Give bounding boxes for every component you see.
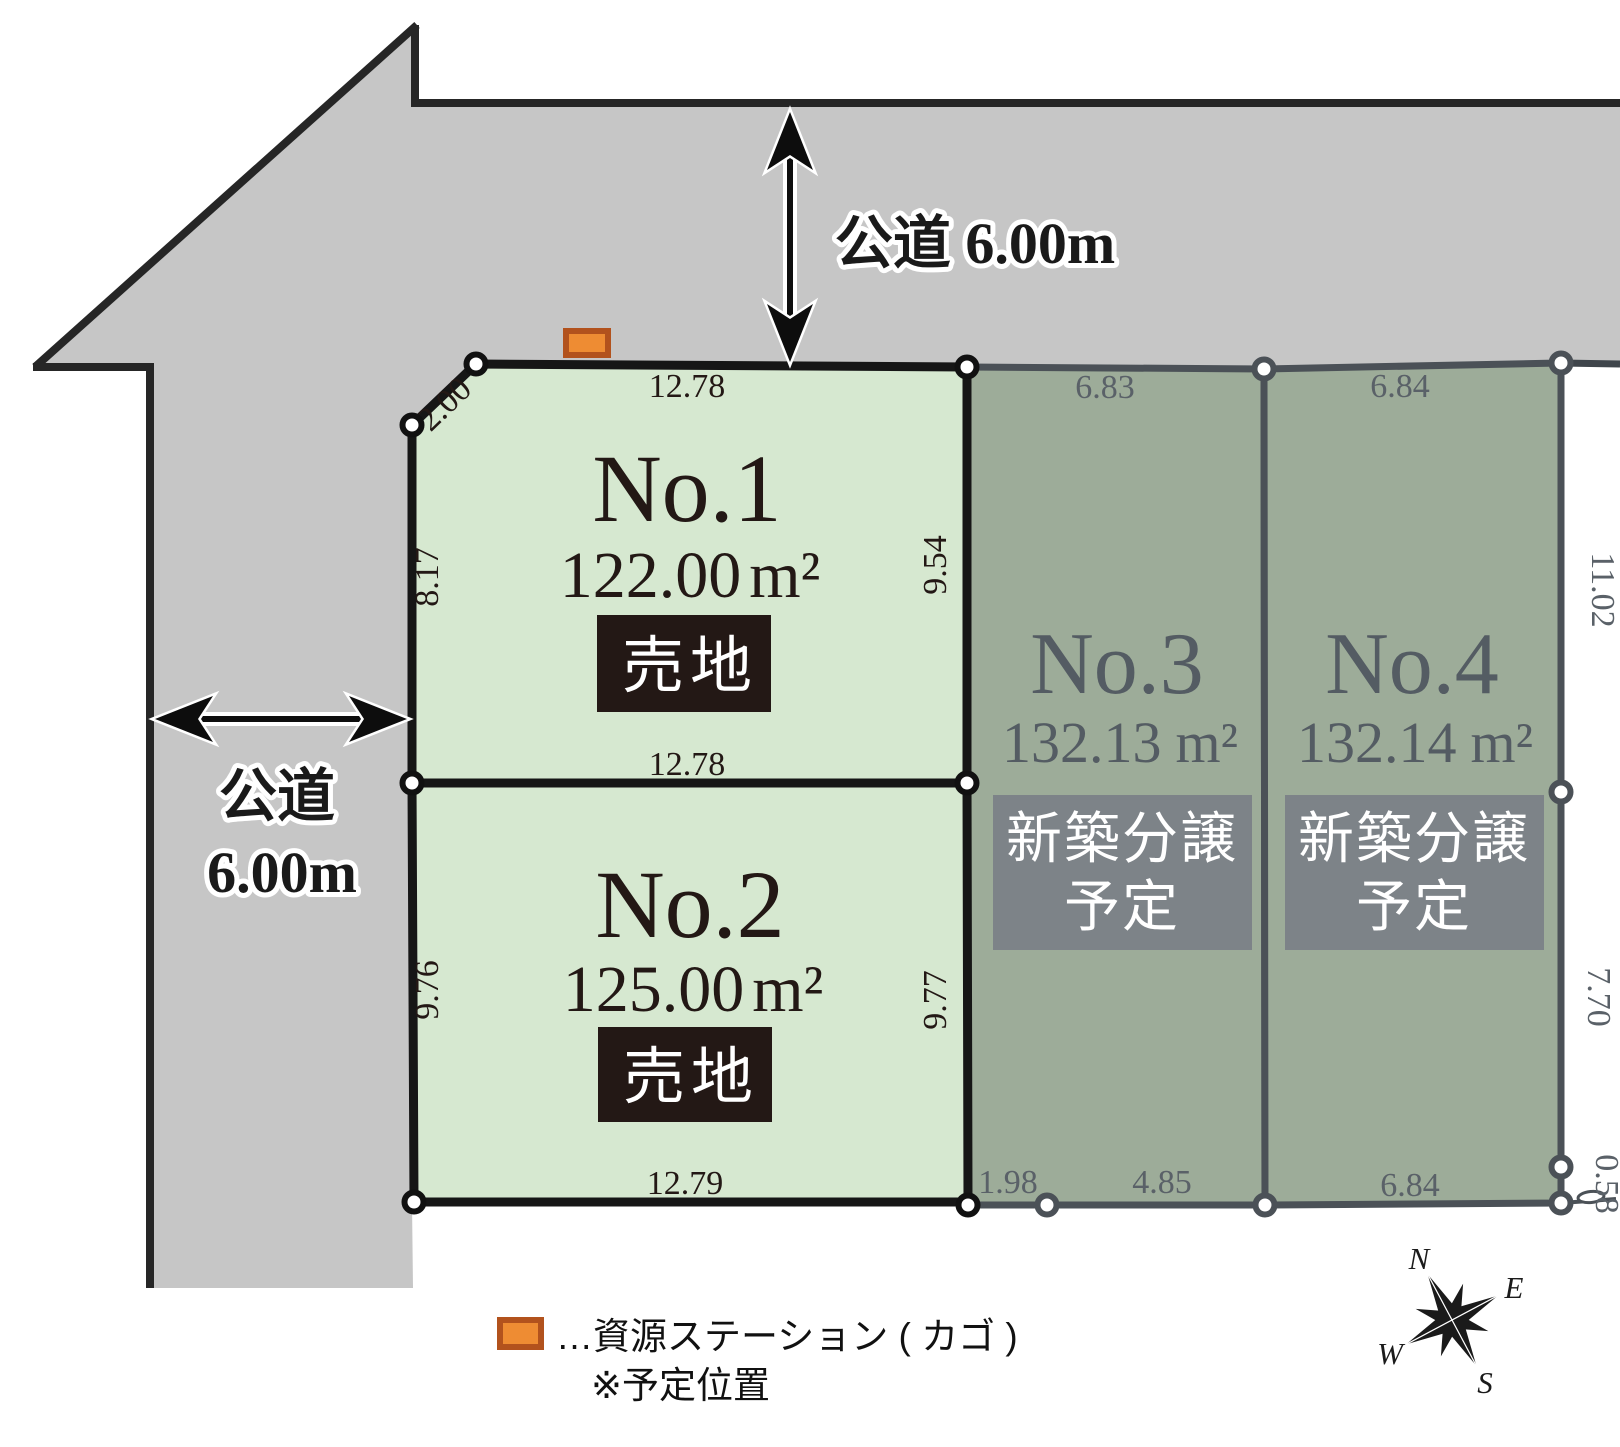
dim-no1-top: 12.78 <box>649 368 726 405</box>
dim-no2-right: 9.77 <box>917 970 954 1030</box>
dim-no3-top: 6.83 <box>1075 369 1135 406</box>
lot-no3-parcel <box>967 367 1265 1205</box>
lot-no3-title: No.3 <box>1030 616 1204 713</box>
dim-no2-bottom: 12.79 <box>647 1165 724 1202</box>
dim-no4-top: 6.84 <box>1370 368 1430 405</box>
lot-no3-area: 132.13m² <box>1002 710 1238 775</box>
dim-no1-left: 8.17 <box>409 547 446 607</box>
dim-no1-right: 9.54 <box>917 535 954 595</box>
dim-no4-right-upper: 11.02 <box>1584 552 1620 627</box>
compass-west-label: W <box>1377 1336 1406 1371</box>
resource-station-marker <box>566 331 608 355</box>
legend: …資源ステーション ( カゴ ) ※予定位置 <box>500 1316 1018 1406</box>
lot-no4-planned-badge-line2: 予定 <box>1356 877 1472 939</box>
lot-no1-title: No.1 <box>592 435 781 542</box>
lot-no3-planned-badge-line2: 予定 <box>1064 877 1180 939</box>
lot-no3-planned-badge-line1: 新築分譲 <box>1006 809 1238 871</box>
lot-no1-area: 122.00m² <box>560 539 821 612</box>
compass-south-label: S <box>1477 1365 1493 1400</box>
lot-no2-area: 125.00m² <box>563 953 824 1026</box>
compass-east-label: E <box>1504 1270 1524 1305</box>
legend-line1: …資源ステーション ( カゴ ) <box>556 1316 1018 1357</box>
dim-no3-bottom-left: 1.98 <box>978 1164 1038 1201</box>
road-label-left-line2: 6.00m <box>207 840 357 905</box>
lot-no1-sale-badge-label: 売地 <box>622 633 758 701</box>
lot-no4-parcel <box>1264 363 1561 1205</box>
dim-no3-bottom-right: 4.85 <box>1132 1164 1192 1201</box>
dim-no4-bottom: 6.84 <box>1380 1167 1440 1204</box>
dim-no1-bottom: 12.78 <box>649 746 726 783</box>
lot-no4-planned-badge-line1: 新築分譲 <box>1298 809 1530 871</box>
compass-rose: N E S W <box>1377 1241 1525 1400</box>
lot-no4-title: No.4 <box>1325 616 1499 713</box>
lot-no4-area: 132.14m² <box>1297 710 1533 775</box>
dim-no4-right-corner: 0.58 <box>1588 1154 1620 1214</box>
road-label-top: 公道 6.00m <box>835 211 1115 276</box>
dim-no4-right-lower: 7.70 <box>1580 967 1617 1027</box>
lot-no2-sale-badge-label: 売地 <box>623 1044 759 1112</box>
compass-north-label: N <box>1408 1241 1432 1276</box>
dim-no2-left: 9.76 <box>409 960 446 1020</box>
lot-subdivision-plan: 12.78 2.00 8.17 9.54 12.78 9.76 9.77 12.… <box>0 0 1620 1447</box>
road-label-left-line1: 公道 <box>219 764 335 829</box>
lot-no2-title: No.2 <box>595 851 784 958</box>
site-plan-canvas: 12.78 2.00 8.17 9.54 12.78 9.76 9.77 12.… <box>0 0 1620 1447</box>
legend-swatch-resource-station <box>500 1320 541 1347</box>
legend-line2: ※予定位置 <box>591 1365 770 1406</box>
